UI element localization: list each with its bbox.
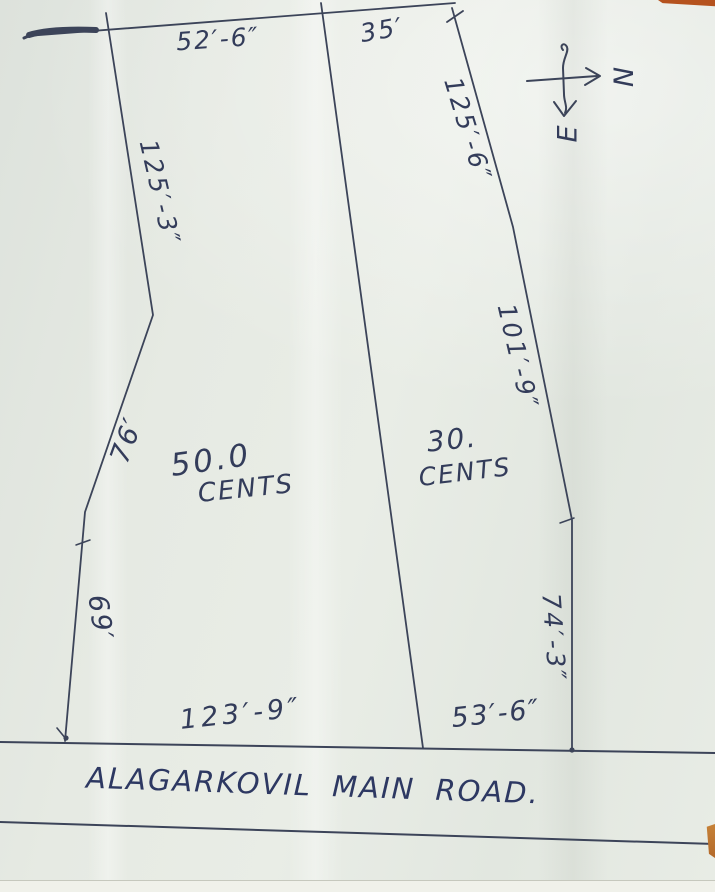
compass-icon <box>527 44 600 116</box>
dimension-top-east-label: 35′ <box>358 14 405 46</box>
area-east-value-label: 30. <box>425 423 478 456</box>
compass-east-arrow <box>554 44 576 116</box>
photo-edge-bottom-strip <box>0 880 715 892</box>
survey-sketch-paper: 52′-6″ 35′ 125′-3″ 125′-6″ 101′-9″ 74′-3… <box>0 0 715 892</box>
dimension-lower-left-label: 69′ <box>83 593 116 643</box>
dimension-lower-right-label: 74′-3″ <box>538 592 569 683</box>
compass-north-label: N <box>609 67 636 87</box>
dimension-top-west-label: 52′-6″ <box>175 24 260 55</box>
plot-divider-line <box>321 3 423 748</box>
compass-east-label: E <box>555 125 582 142</box>
